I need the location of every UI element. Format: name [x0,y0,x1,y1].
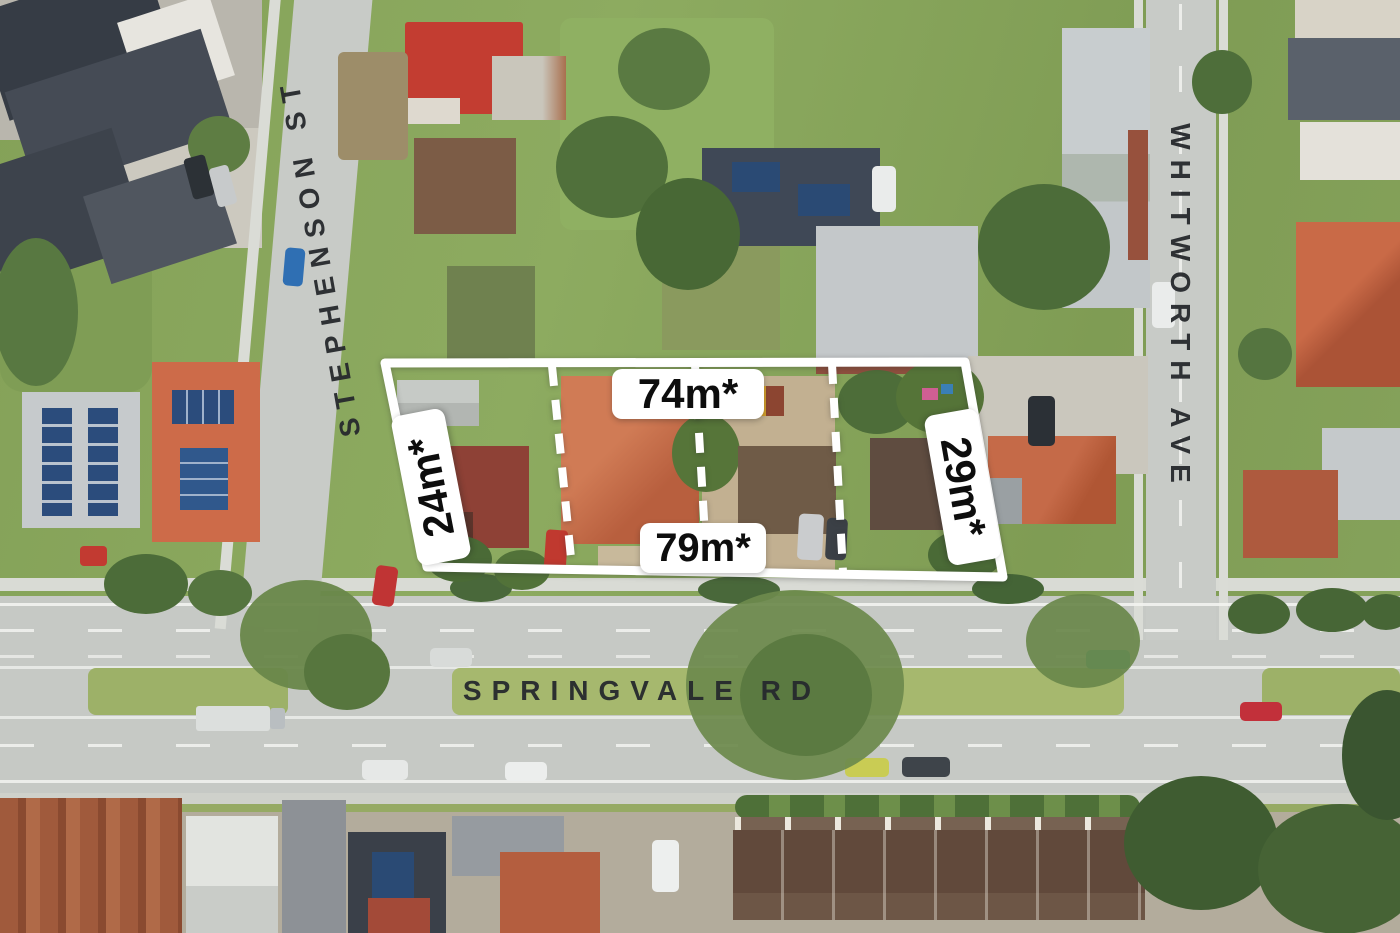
aerial-site-photo: 74m* 79m* 24m* 29m* STEPHENSON ST WHITWO… [0,0,1400,933]
street-label-springvale-rd: SPRINGVALE RD [463,675,821,707]
street-label-whitworth-ave: WHITWORTH AVE [1164,123,1196,493]
lot-divider-3 [832,364,843,572]
dimension-label-bottom-frontage: 79m* [640,523,766,573]
dimension-label-top-frontage: 74m* [612,369,764,419]
lot-divider-1 [552,366,572,568]
